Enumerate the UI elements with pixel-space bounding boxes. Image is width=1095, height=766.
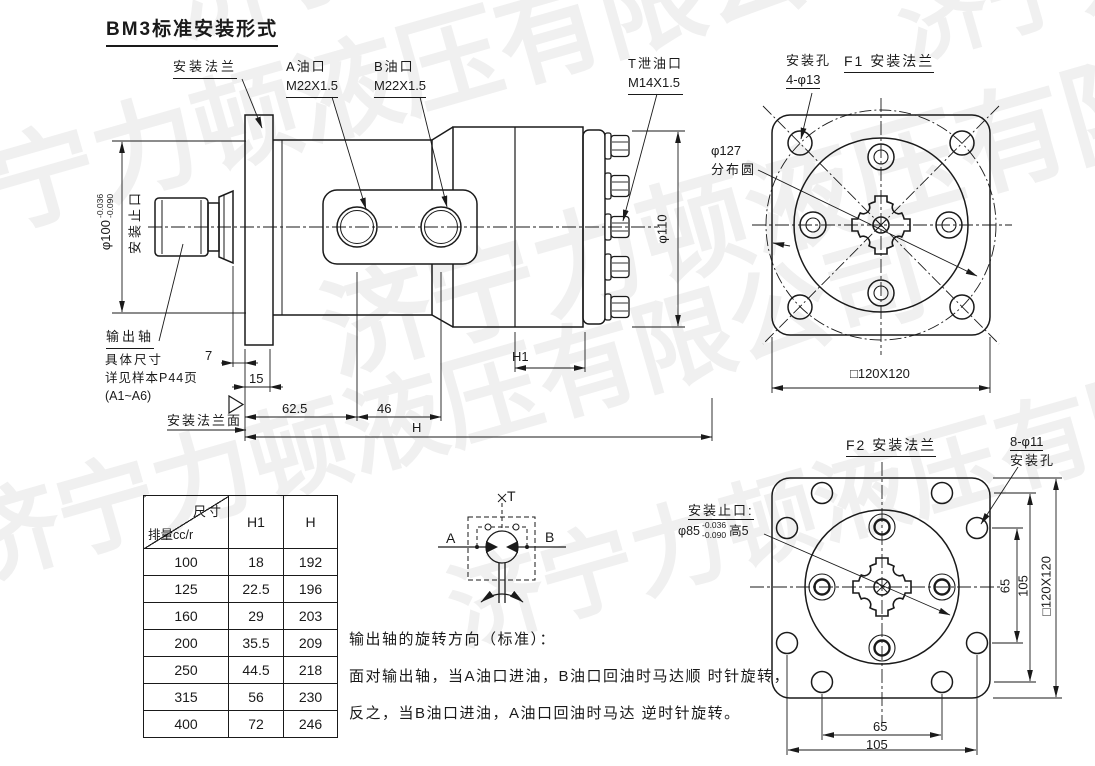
dim-7: 7 <box>205 347 212 366</box>
cell: 56 <box>229 684 284 711</box>
f2-holes-count: 8-φ11 <box>1010 434 1043 451</box>
spec-table: 尺寸 排量cc/r H1 H 10018192 12522.5196 16029… <box>143 495 338 738</box>
port-a-thread: M22X1.5 <box>286 78 338 93</box>
f2-dim-65-horizontal: 65 <box>873 718 887 737</box>
spec-table-diagonal-cell: 尺寸 排量cc/r <box>144 496 229 549</box>
cell: 35.5 <box>229 630 284 657</box>
dim-15: 15 <box>249 370 263 389</box>
f1-holes-text: 安装孔 <box>786 53 831 68</box>
header-size: 尺寸 <box>193 501 223 520</box>
cell: 246 <box>284 711 338 738</box>
f2-square-dim-vertical: □120X120 <box>1039 556 1054 616</box>
f2-pilot-dia: φ85 <box>678 522 700 540</box>
hydraulic-symbol <box>438 494 566 603</box>
cell: 22.5 <box>229 576 284 603</box>
schematic-port-a: A <box>446 528 455 548</box>
page-title: BM3标准安装形式 <box>106 14 278 47</box>
cell: 196 <box>284 576 338 603</box>
cell: 209 <box>284 630 338 657</box>
pilot-tol-lower: -0.090 <box>106 194 116 218</box>
port-a-label: A油口 M22X1.5 <box>286 58 338 98</box>
header-displacement: 排量cc/r <box>148 524 193 543</box>
table-row: 31556230 <box>144 684 338 711</box>
f2-pilot-tolerance: -0.036 -0.090 <box>702 521 726 541</box>
table-row: 20035.5209 <box>144 630 338 657</box>
body-diameter-label: φ110 <box>655 214 670 243</box>
rotation-note-line2: 面对输出轴，当A油口进油，B油口回油时马达顺 时针旋转， <box>349 665 790 686</box>
shaft-note-3: (A1~A6) <box>105 387 151 405</box>
cell: 160 <box>144 603 229 630</box>
table-row: 40072246 <box>144 711 338 738</box>
f2-holes-text: 安装孔 <box>1010 453 1055 468</box>
port-a-name: A油口 <box>286 59 327 74</box>
cell: 203 <box>284 603 338 630</box>
header-h: H <box>284 496 338 549</box>
f2-title: F2 安装法兰 <box>846 435 936 457</box>
f2-dim-65v-value: 65 <box>998 579 1013 593</box>
f2-pilot-tol-lower: -0.090 <box>702 531 726 541</box>
cell: 200 <box>144 630 229 657</box>
drain-port-thread: M14X1.5 <box>628 75 680 90</box>
cell: 29 <box>229 603 284 630</box>
cell: 125 <box>144 576 229 603</box>
dim-46: 46 <box>377 400 391 419</box>
page: { "title": "BM3标准安装形式", "watermark": { "… <box>0 0 1095 766</box>
f1-holes-count: 4-φ13 <box>786 72 820 89</box>
header-h1: H1 <box>229 496 284 549</box>
f1-bolt-circle-dia: φ127 <box>711 143 741 158</box>
dim-62-5: 62.5 <box>282 400 307 419</box>
f1-view-linework <box>752 98 1012 355</box>
cell: 315 <box>144 684 229 711</box>
cell: 72 <box>229 711 284 738</box>
cell: 218 <box>284 657 338 684</box>
f1-bolt-circle-label: φ127 分布圆 <box>711 142 756 180</box>
port-b-thread: M22X1.5 <box>374 78 426 93</box>
table-row: 12522.5196 <box>144 576 338 603</box>
f2-pilot-label: 安装止口: φ85 -0.036 -0.090 高5 <box>678 502 754 540</box>
table-row: 25044.5218 <box>144 657 338 684</box>
pilot-spigot-label: 安装止口 <box>125 190 144 254</box>
drain-port-label: T泄油口 M14X1.5 <box>628 55 683 95</box>
schematic-port-t: T <box>507 486 516 506</box>
side-view-linework <box>148 115 658 345</box>
output-shaft-label: 输出轴 <box>106 328 154 349</box>
flange-face-label: 安装法兰面 <box>167 412 242 431</box>
cell: 44.5 <box>229 657 284 684</box>
spec-table-header-row: 尺寸 排量cc/r H1 H <box>144 496 338 549</box>
port-b-name: B油口 <box>374 59 415 74</box>
f1-square-dim: □120X120 <box>850 365 910 384</box>
f2-dim-65-vertical: 65 <box>998 579 1013 593</box>
table-row: 16029203 <box>144 603 338 630</box>
f1-holes-label: 安装孔 4-φ13 <box>786 52 831 90</box>
shaft-note-2: 详见样本P44页 <box>105 369 198 387</box>
schematic-port-b: B <box>545 527 554 547</box>
cell: 400 <box>144 711 229 738</box>
cell: 100 <box>144 549 229 576</box>
rotation-note-line1: 输出轴的旋转方向（标准）： <box>349 628 556 649</box>
f2-dim-105-vertical: 105 <box>1016 575 1031 597</box>
f2-pilot-title: 安装止口: <box>688 503 754 520</box>
body-diameter-value: φ110 <box>655 214 670 243</box>
f1-title: F1 安装法兰 <box>844 51 934 73</box>
pilot-tolerance: -0.036 -0.090 <box>96 194 116 218</box>
pilot-diameter-value: φ100 <box>99 220 114 250</box>
f2-dim-105v-value: 105 <box>1016 575 1031 597</box>
dim-h: H <box>412 419 421 438</box>
port-b-label: B油口 M22X1.5 <box>374 58 426 98</box>
rotation-note-line3: 反之，当B油口进油，A油口回油时马达 逆时针旋转。 <box>349 702 741 723</box>
f1-bolt-circle-text: 分布圆 <box>711 162 756 177</box>
shaft-note-1: 具体尺寸 <box>105 351 163 369</box>
table-row: 10018192 <box>144 549 338 576</box>
f2-pilot-height: 高5 <box>729 522 748 540</box>
drain-port-name: T泄油口 <box>628 56 683 71</box>
f2-holes-label: 8-φ11 安装孔 <box>1010 433 1055 471</box>
dim-h1: H1 <box>512 348 529 367</box>
f2-square-dim-value: □120X120 <box>1039 556 1054 616</box>
cell: 18 <box>229 549 284 576</box>
mount-flange-label: 安装法兰 <box>173 58 237 79</box>
pilot-diameter-label: φ100 -0.036 -0.090 <box>96 194 116 250</box>
pilot-spigot-text: 安装止口 <box>125 190 144 254</box>
cell: 192 <box>284 549 338 576</box>
cell: 250 <box>144 657 229 684</box>
cell: 230 <box>284 684 338 711</box>
f2-dim-105-horizontal: 105 <box>866 736 888 755</box>
